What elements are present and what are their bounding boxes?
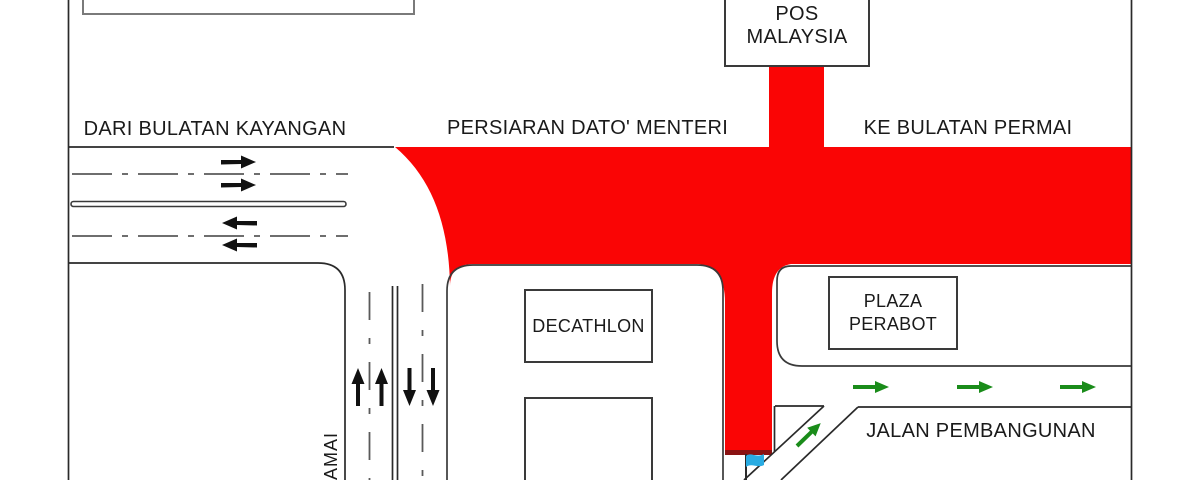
decathlon-box: DECATHLON	[524, 289, 653, 363]
plaza-perabot-box: PLAZA PERABOT	[828, 276, 958, 350]
median-island	[71, 202, 346, 207]
decathlon-label: DECATHLON	[532, 315, 644, 338]
plaza-perabot-line1: PLAZA	[864, 290, 923, 313]
plaza-perabot-line2: PERABOT	[849, 313, 937, 336]
title-block-box	[82, 0, 415, 15]
pos-malaysia-line1: POS	[775, 3, 818, 26]
closure-end-cap	[725, 450, 772, 455]
label-ke-bulatan-permai: KE BULATAN PERMAI	[848, 117, 1088, 140]
unlabeled-building-box	[524, 397, 653, 480]
label-persiaran-dato-menteri: PERSIARAN DATO' MENTERI	[447, 117, 727, 140]
pos-malaysia-box: POS MALAYSIA	[724, 0, 870, 67]
label-jalan-damai-fragment: AMAI	[321, 426, 341, 480]
label-dari-bulatan-kayangan: DARI BULATAN KAYANGAN	[75, 118, 355, 141]
pos-malaysia-line2: MALAYSIA	[747, 26, 848, 49]
south-road	[352, 284, 440, 480]
west-road	[69, 147, 394, 480]
westbound-arrows	[222, 217, 257, 252]
southbound-arrows	[403, 368, 440, 406]
road-closure-map: DARI BULATAN KAYANGAN PERSIARAN DATO' ME…	[0, 0, 1200, 480]
label-jalan-pembangunan: JALAN PEMBANGUNAN	[861, 420, 1101, 443]
